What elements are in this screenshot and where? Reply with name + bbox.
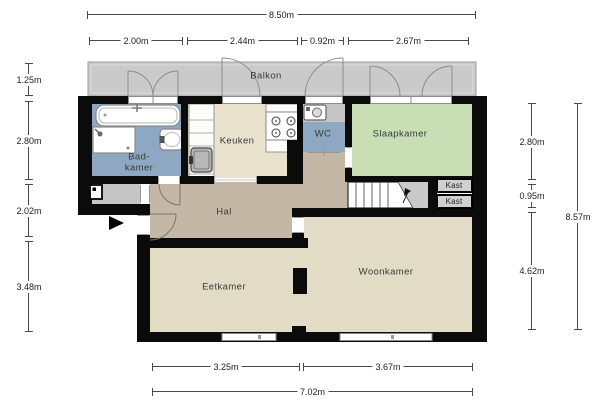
hal-woonkamer-door-opening: [292, 217, 304, 233]
slaapkamer-door-opening: [345, 147, 352, 168]
window-divider: [258, 335, 261, 339]
dim-bottom-segment-1: 3.25m: [152, 366, 300, 367]
dim-top-segment-3: 0.92m: [301, 40, 344, 41]
pillar: [293, 268, 307, 294]
floor-plan: Balkon Bad- kamer Keuken WC Slaapkamer K…: [0, 0, 600, 400]
dim-bottom-segment-2: 3.67m: [303, 366, 473, 367]
room-woonkamer: [304, 217, 472, 248]
woonkamer-label: Woonkamer: [359, 266, 414, 277]
kast-bottom-label: Kast: [446, 197, 463, 207]
wc-label: WC: [315, 128, 332, 139]
shower-icon: [93, 127, 135, 153]
room-slaapkamer: [352, 104, 472, 176]
balkon-label: Balkon: [250, 70, 281, 81]
dim-top-total: 8.50m: [87, 14, 476, 15]
washbasin-icon: [160, 129, 184, 150]
balcony-door-keuken: [223, 97, 262, 104]
slaapkamer-label: Slaapkamer: [373, 128, 428, 139]
stairs-icon: [348, 182, 428, 208]
window-woonkamer: [340, 334, 432, 341]
dim-right-segment-3: 4.62m: [531, 212, 532, 330]
balcony-door-wc-nook: [306, 97, 343, 104]
eetkamer-label: Eetkamer: [202, 281, 246, 292]
hal-label: Hal: [216, 206, 231, 217]
dim-left-segment-2: 2.80m: [28, 101, 29, 180]
washing-machine-icon: [304, 105, 326, 120]
front-door-opening: [137, 215, 150, 235]
stove-icon: [266, 112, 300, 140]
dim-right-segment-2: 0.95m: [531, 184, 532, 208]
dim-left-segment-4: 3.48m: [28, 241, 29, 332]
bathtub-icon: [96, 104, 180, 126]
dim-left-segment-1: 1.25m: [28, 63, 29, 96]
dim-bottom-total: 7.02m: [152, 391, 473, 392]
dim-top-segment-2: 2.44m: [187, 40, 298, 41]
keuken-label: Keuken: [220, 135, 255, 146]
wall-bump: [292, 326, 306, 333]
window-eetkamer: [222, 334, 276, 341]
dim-right-total: 8.57m: [577, 103, 578, 330]
floor-plan-drawing: [0, 0, 600, 400]
dim-top-segment-4: 2.67m: [348, 40, 469, 41]
badkamer-door-opening: [158, 176, 180, 184]
badkamer-label: Bad- kamer: [125, 152, 153, 175]
kitchen-sink-icon: [189, 148, 212, 172]
window-divider: [391, 335, 394, 339]
entrance-arrow-icon: [109, 216, 124, 230]
meter-box-icon: [90, 185, 102, 199]
dim-right-segment-1: 2.80m: [531, 103, 532, 180]
dim-top-segment-1: 2.00m: [89, 40, 183, 41]
dim-left-segment-3: 2.02m: [28, 184, 29, 237]
room-eetkamer: [150, 248, 472, 332]
kast-top-label: Kast: [446, 181, 463, 191]
